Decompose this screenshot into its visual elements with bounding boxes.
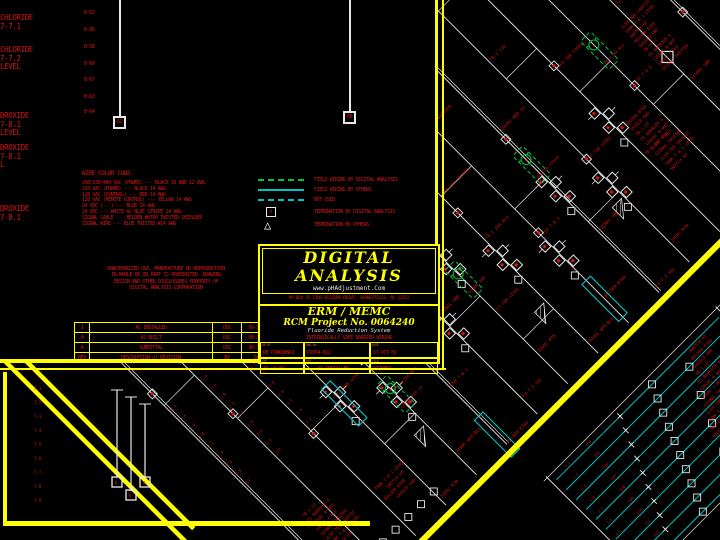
svg-text:SIGNAL GND: SIGNAL GND (467, 274, 487, 294)
legend-item: NOT USED (258, 195, 398, 205)
upright-drawing-sheet: CHLORIDE7-7.1CHLORIDE7-7.2LEVELDROXIDE7-… (0, 0, 438, 363)
svg-text:112: 112 (652, 529, 660, 537)
wire-number: B-60 (84, 61, 94, 67)
process-label-group: CHLORIDE7-7.1 (0, 14, 33, 31)
disclaimer-line: DIGITAL ANALYSIS CORPORATION (74, 285, 258, 291)
cyan-solid-icon (258, 189, 314, 191)
svg-text:1-6: 1-6 (209, 382, 218, 391)
process-label-group: DROXIDE7-8.1 (0, 205, 29, 222)
title-block-cell: SHT19 of 99 (260, 358, 304, 374)
wire-number: B-62 (84, 10, 94, 16)
svg-text:2-8: 2-8 (276, 388, 285, 397)
svg-text:3-4: 3-4 (274, 446, 283, 455)
svg-text:8: 8 (115, 481, 118, 487)
svg-text:2-6: 2-6 (246, 419, 255, 428)
title-block-cell: DATE17-OCT-01 (370, 342, 438, 358)
legend-label: FIELD WIRING BY OTHERS (314, 187, 371, 193)
legend-item: FIELD WIRING BY OTHERS (258, 185, 398, 195)
process-label-group: DROXIDE7-8.1L (0, 144, 29, 170)
svg-text:24VDC WHT/BLU: 24VDC WHT/BLU (588, 316, 616, 344)
revision-row: 1AS INSTALLEDDSC09-10-01 (75, 323, 277, 333)
svg-text:24VDC RTN: 24VDC RTN (537, 333, 558, 354)
svg-text:107: 107 (609, 473, 617, 481)
wire-number: B-58 (84, 44, 94, 50)
svg-text:106: 106 (601, 461, 610, 470)
title-block-cell: FILE9778091 (370, 358, 438, 374)
svg-text:TB-2 118: TB-2 118 (489, 43, 508, 62)
legend-label: FIELD WIRING BY DIGITAL ANALYSIS (314, 177, 398, 183)
svg-text:1FV-708 120VAC: 1FV-708 120VAC (556, 40, 586, 70)
svg-text:1-2: 1-2 (564, 461, 571, 468)
svg-text:7-9: 7-9 (34, 498, 42, 503)
svg-text:2-6: 2-6 (225, 458, 234, 467)
wire-color-code: WIRE COLOR CODE: 208/230/460 VAC (POWER)… (82, 170, 205, 227)
svg-text:BELDEN 8760: BELDEN 8760 (603, 274, 628, 299)
box-x-icon: x (258, 207, 314, 217)
green-dashed-icon (258, 179, 314, 181)
revision-row: ASUBMITTALDSC06-18-01 (75, 343, 277, 353)
field-wire-line (349, 0, 351, 111)
revision-cell-description: SUBMITTAL (90, 343, 213, 353)
svg-text:LT-708 LEVEL: LT-708 LEVEL (495, 286, 521, 312)
svg-text:109: 109 (626, 495, 635, 504)
company-website: www.pHAdjustment.Com (263, 285, 435, 293)
svg-text:1FV-708 120VAC: 1FV-708 120VAC (440, 167, 470, 197)
revision-cell-rev: REV (75, 353, 90, 363)
wire-number: B-66 (84, 27, 94, 33)
svg-text:1-8: 1-8 (197, 431, 206, 440)
svg-text:24VDC WHT/BLU: 24VDC WHT/BLU (455, 426, 483, 454)
svg-text:108: 108 (618, 484, 627, 493)
svg-text:1-6: 1-6 (188, 421, 197, 430)
legend: FIELD WIRING BY DIGITAL ANALYSISFIELD WI… (258, 175, 398, 231)
svg-text:FV-7.2 SOL: FV-7.2 SOL (521, 376, 544, 399)
title-block-cell: REV1 - AS INSTALLED (304, 358, 370, 374)
svg-text:2-2: 2-2 (206, 440, 214, 448)
svg-text:2-2: 2-2 (228, 401, 236, 409)
revision-cell-by: BY (213, 353, 242, 363)
sheet-subtitle: INTRINSICALLY SAFE BARRIER WIRING (260, 335, 438, 341)
revision-cell-by: DSC (213, 343, 242, 353)
svg-text:1-2: 1-2 (304, 416, 312, 424)
svg-text:3-4: 3-4 (295, 407, 304, 416)
revision-cell-rev: A (75, 343, 90, 353)
svg-text:LT-708 LEVEL: LT-708 LEVEL (587, 134, 613, 160)
revision-cell-by: DSC (213, 333, 242, 343)
company-name-box: DIGITAL ANALYSIS www.pHAdjustment.Com (262, 248, 436, 294)
svg-text:3-2: 3-2 (243, 477, 251, 485)
svg-text:1-8: 1-8 (218, 391, 227, 400)
revision-cell-by: DSC (213, 323, 242, 333)
cyan-dashed-icon (258, 199, 314, 201)
process-label-group: DROXIDE7-8.1LEVEL (0, 112, 29, 138)
svg-text:1-4: 1-4 (179, 412, 188, 421)
svg-text:1-8: 1-8 (589, 495, 596, 502)
title-block: DIGITAL ANALYSIS www.pHAdjustment.Com PO… (258, 244, 440, 364)
wire-number: B-63 (84, 94, 94, 100)
revision-cell-rev: 0 (75, 333, 90, 343)
svg-text:4: 4 (143, 481, 146, 487)
svg-text:2-8: 2-8 (255, 428, 264, 437)
svg-text:1FV-708 120VAC: 1FV-708 120VAC (535, 154, 561, 180)
svg-text:24VDC RTN: 24VDC RTN (670, 223, 691, 244)
svg-text:TB-1 104 BLU: TB-1 104 BLU (602, 42, 625, 65)
svg-text:7-3: 7-3 (34, 414, 42, 419)
client-name: ERM / MEMC (260, 306, 438, 318)
revision-cell-description: AS BUILT (90, 333, 213, 343)
svg-text:2-2: 2-2 (597, 507, 604, 514)
svg-text:LSH 7-8.1: LSH 7-8.1 (541, 216, 562, 237)
triangle-icon: △ (258, 219, 314, 231)
revision-cell-description: AS INSTALLED (90, 323, 213, 333)
revision-cell-description: DESCRIPTION of REVISION (90, 353, 213, 363)
field-wire-line (119, 0, 121, 116)
svg-text:1-6: 1-6 (581, 484, 588, 491)
project-number: RCM Project No. 0064240 (260, 318, 438, 328)
legend-label: TERMINATION BY OTHERS (314, 222, 369, 228)
svg-text:3-2: 3-2 (264, 437, 272, 445)
svg-text:7-1: 7-1 (34, 386, 42, 391)
svg-text:110: 110 (635, 506, 644, 515)
svg-text:2-4: 2-4 (216, 449, 225, 458)
svg-text:111: 111 (643, 518, 652, 527)
svg-text:2-6: 2-6 (267, 379, 276, 388)
title-block-cell: DR BYRE PINKOWSKI (260, 342, 304, 358)
svg-text:105: 105 (593, 450, 601, 458)
svg-text:120VAC RED 14: 120VAC RED 14 (498, 105, 526, 133)
disclaimer: UNAUTHORIZED USE, MANUFACTURE OR REPRODU… (74, 266, 258, 292)
sheet-border-right-outer (442, 0, 444, 368)
company-address: PO BOX 35 1109 VISIONS DRIVE, SKANEATELE… (260, 296, 438, 302)
wire-number: B-67 (84, 77, 94, 83)
wire-color-code-title: WIRE COLOR CODE: (82, 170, 205, 177)
svg-text:24VDC RTN: 24VDC RTN (439, 479, 460, 500)
legend-item: FIELD WIRING BY DIGITAL ANALYSIS (258, 175, 398, 185)
company-name: DIGITAL ANALYSIS (263, 249, 435, 285)
legend-label: TERMINATION BY DIGITAL ANALYSIS (314, 209, 395, 215)
cad-plot-viewport: 1-21-41-61-82-22-42-62-83-21-41-61-82-22… (0, 0, 720, 540)
termination-box: 62 (113, 116, 126, 129)
svg-text:1-4: 1-4 (200, 373, 209, 382)
revision-cell-rev: 1 (75, 323, 90, 333)
wire-number: B-64 (84, 109, 94, 115)
svg-text:1-4: 1-4 (572, 473, 579, 480)
svg-text:SIGNAL GND: SIGNAL GND (689, 58, 712, 81)
revision-row: REVDESCRIPTION of REVISIONBYDATE (75, 353, 277, 363)
sheet-border-bottom-outer (0, 368, 446, 370)
svg-text:SIGNAL GND: SIGNAL GND (597, 209, 620, 232)
svg-text:7-8: 7-8 (34, 484, 42, 489)
svg-text:LSH 7-8.1: LSH 7-8.1 (449, 367, 470, 388)
svg-text:120VAC RED 14: 120VAC RED 14 (614, 0, 642, 6)
revision-table: 1AS INSTALLEDDSC09-10-010AS BUILTDSC08-1… (74, 322, 277, 363)
svg-text:2-8: 2-8 (234, 467, 243, 476)
legend-item: xTERMINATION BY DIGITAL ANALYSIS (258, 205, 398, 218)
svg-text:6: 6 (129, 494, 132, 500)
svg-text:1-2: 1-2 (170, 404, 178, 412)
svg-text:2-6: 2-6 (614, 529, 621, 536)
svg-text:2-4: 2-4 (606, 518, 613, 525)
svg-text:7-6: 7-6 (34, 456, 42, 461)
svg-text:LT-708 LEVEL: LT-708 LEVEL (336, 370, 362, 396)
svg-text:7-4: 7-4 (34, 428, 42, 433)
wire-color-code-line: SIGNAL WIRE --- BLUE TWISTED #14 AWG (82, 222, 205, 228)
legend-label: NOT USED (314, 197, 335, 203)
legend-item: △TERMINATION BY OTHERS (258, 218, 398, 231)
svg-text:7-5: 7-5 (34, 442, 42, 447)
svg-text:3-2: 3-2 (286, 398, 294, 406)
process-label-group: CHLORIDE7-7.2LEVEL (0, 46, 33, 72)
svg-text:TB-1 104 BLU: TB-1 104 BLU (484, 214, 510, 240)
revision-row: 0AS BUILTDSC08-14-01 (75, 333, 277, 343)
title-block-cell: DWG NoP2004-012 (304, 342, 370, 358)
svg-text:7-2: 7-2 (34, 400, 42, 405)
termination-box: 60 (343, 111, 356, 124)
svg-text:7-7: 7-7 (34, 470, 42, 475)
